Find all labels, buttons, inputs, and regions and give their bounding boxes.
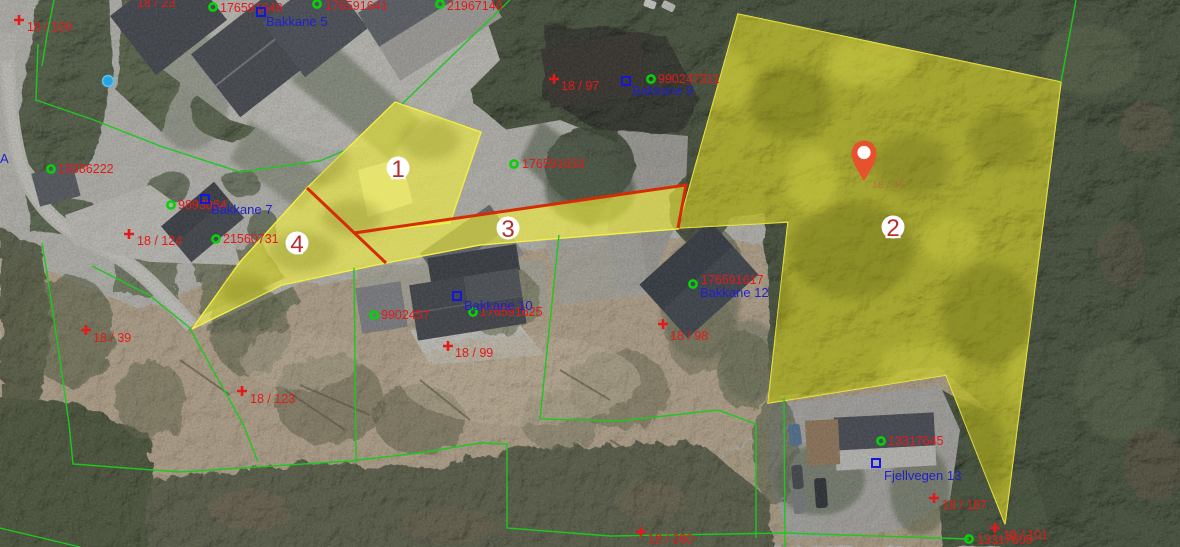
svg-text:18 / 280: 18 / 280 — [648, 532, 693, 546]
svg-text:Bakkane 5: Bakkane 5 — [266, 14, 327, 29]
svg-text:18 / 124: 18 / 124 — [137, 234, 182, 248]
svg-text:18 / 99: 18 / 99 — [455, 346, 493, 360]
svg-text:A: A — [0, 151, 9, 166]
svg-text:1: 1 — [391, 156, 404, 183]
svg-text:9902457: 9902457 — [381, 308, 430, 322]
svg-text:4: 4 — [290, 231, 303, 258]
svg-text:18 / 100: 18 / 100 — [27, 20, 72, 34]
svg-text:18 / 97: 18 / 97 — [561, 79, 599, 93]
svg-text:176591641: 176591641 — [325, 0, 388, 13]
svg-text:18 / 101: 18 / 101 — [1003, 528, 1048, 542]
svg-text:18 / 23: 18 / 23 — [137, 0, 175, 10]
svg-text:176591648: 176591648 — [220, 1, 283, 15]
svg-text:21560731: 21560731 — [223, 232, 279, 246]
svg-text:18 / 46: 18 / 46 — [872, 179, 904, 191]
svg-text:18 / 187: 18 / 187 — [942, 498, 987, 512]
svg-text:Bakkane 7: Bakkane 7 — [211, 202, 272, 217]
svg-text:19386222: 19386222 — [58, 162, 114, 176]
svg-text:Bakkane 10: Bakkane 10 — [464, 298, 533, 313]
svg-text:18 / 98: 18 / 98 — [670, 329, 708, 343]
svg-text:18 / 123: 18 / 123 — [250, 392, 295, 406]
svg-text:21967140: 21967140 — [447, 0, 503, 13]
svg-text:Bakkane 12: Bakkane 12 — [700, 285, 769, 300]
svg-text:18 / 39: 18 / 39 — [93, 331, 131, 345]
svg-text:13317645: 13317645 — [888, 434, 944, 448]
svg-text:Bakkane 9: Bakkane 9 — [632, 83, 693, 98]
svg-text:176591633: 176591633 — [522, 157, 585, 171]
svg-text:2: 2 — [886, 215, 899, 242]
svg-text:3: 3 — [501, 216, 514, 243]
svg-text:Fjellvegen 13: Fjellvegen 13 — [884, 468, 961, 483]
